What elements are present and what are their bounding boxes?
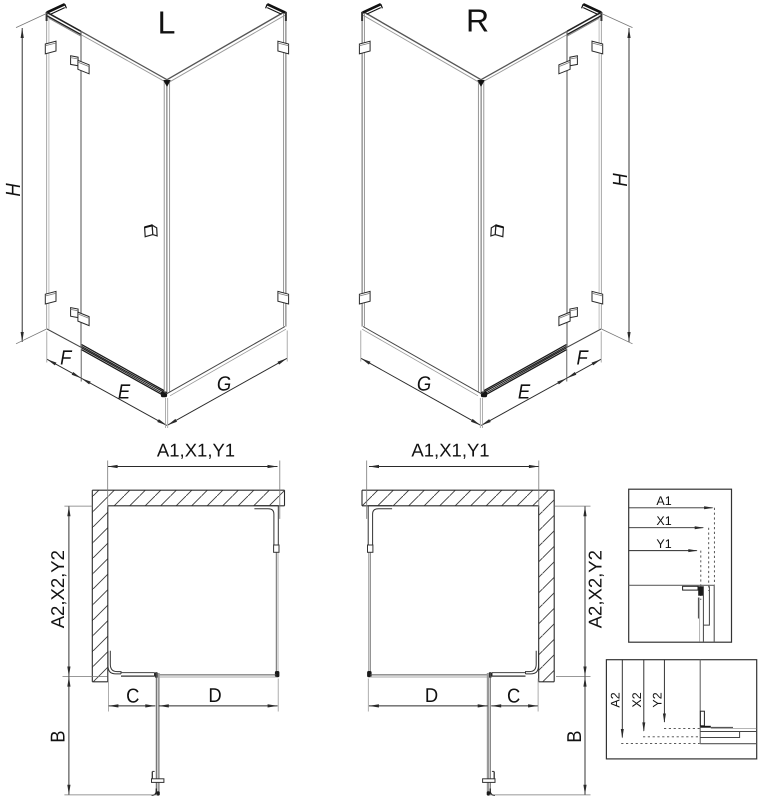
svg-text:H: H bbox=[2, 183, 25, 197]
svg-text:E: E bbox=[118, 380, 131, 403]
svg-text:Y2: Y2 bbox=[650, 692, 664, 707]
svg-text:B: B bbox=[48, 730, 70, 742]
svg-text:Y1: Y1 bbox=[656, 537, 671, 551]
svg-text:F: F bbox=[577, 347, 590, 370]
svg-text:A1: A1 bbox=[656, 494, 671, 508]
svg-text:E: E bbox=[518, 380, 531, 403]
svg-text:H: H bbox=[609, 173, 632, 187]
svg-text:L: L bbox=[158, 5, 176, 41]
svg-text:G: G bbox=[417, 373, 431, 396]
svg-text:D: D bbox=[425, 685, 438, 707]
svg-text:C: C bbox=[126, 686, 139, 708]
svg-text:X1: X1 bbox=[656, 514, 671, 528]
svg-text:R: R bbox=[466, 2, 489, 38]
svg-text:G: G bbox=[217, 373, 231, 396]
svg-text:C: C bbox=[507, 686, 520, 708]
svg-text:X2: X2 bbox=[630, 692, 644, 707]
svg-text:A1,X1,Y1: A1,X1,Y1 bbox=[157, 440, 235, 461]
svg-text:A1,X1,Y1: A1,X1,Y1 bbox=[411, 440, 489, 461]
svg-text:A2: A2 bbox=[608, 692, 622, 707]
svg-text:A2,X2,Y2: A2,X2,Y2 bbox=[47, 550, 68, 628]
svg-text:D: D bbox=[208, 685, 221, 707]
svg-text:B: B bbox=[564, 730, 586, 742]
svg-text:F: F bbox=[60, 347, 73, 370]
svg-text:A2,X2,Y2: A2,X2,Y2 bbox=[585, 550, 606, 628]
